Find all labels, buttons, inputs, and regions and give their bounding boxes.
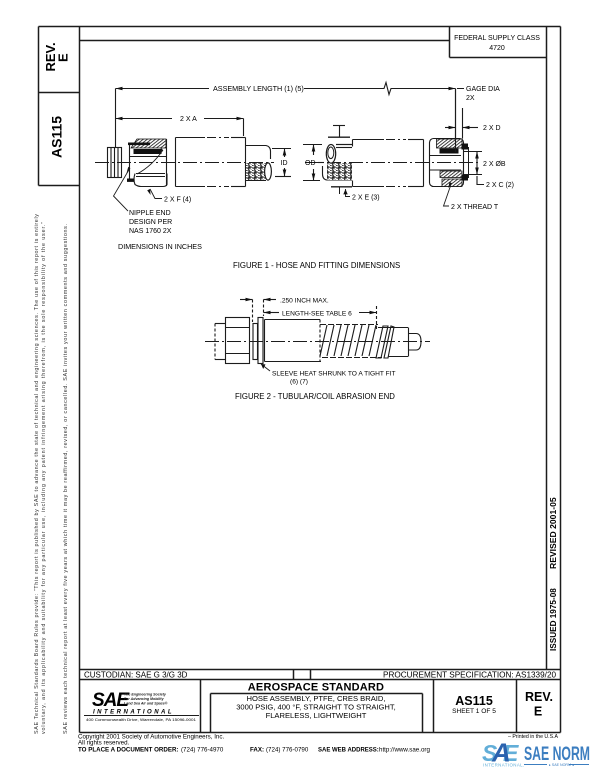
svg-text:LENGTH-SEE TABLE 6: LENGTH-SEE TABLE 6 xyxy=(282,311,352,318)
svg-text:GAGE DIA: GAGE DIA xyxy=(466,86,500,93)
svg-text:NIPPLE END: NIPPLE END xyxy=(129,210,171,217)
svg-text:For Advancing Mobility: For Advancing Mobility xyxy=(124,697,165,701)
svg-text:DIMENSIONS IN INCHES: DIMENSIONS IN INCHES xyxy=(118,242,202,251)
svg-text:REVISED 2001-05: REVISED 2001-05 xyxy=(548,497,558,569)
svg-text:DESIGN PER: DESIGN PER xyxy=(129,219,172,226)
svg-text:SAE Technical Standards Board: SAE Technical Standards Board Rules prov… xyxy=(34,214,40,734)
svg-text:2 X ØB: 2 X ØB xyxy=(483,161,506,168)
svg-text:FIGURE 2 - TUBULAR/COIL ABRASI: FIGURE 2 - TUBULAR/COIL ABRASION END xyxy=(235,392,395,401)
svg-text:AS115: AS115 xyxy=(455,694,493,708)
svg-text:SHEET 1 OF 5: SHEET 1 OF 5 xyxy=(452,708,496,715)
svg-text:2 X E (3): 2 X E (3) xyxy=(352,195,380,202)
svg-text:TO PLACE A DOCUMENT ORDER:(724: TO PLACE A DOCUMENT ORDER:(724) 776-4970… xyxy=(78,747,430,754)
svg-text:REV.: REV. xyxy=(525,690,553,704)
svg-text:ASSEMBLY LENGTH (1) (5): ASSEMBLY LENGTH (1) (5) xyxy=(213,84,304,93)
svg-text:SAE NORM: SAE NORM xyxy=(524,744,590,765)
svg-text:ID: ID xyxy=(281,160,288,167)
svg-text:ISSUED 1975-08: ISSUED 1975-08 xyxy=(549,588,558,651)
svg-text:FIGURE 1 - HOSE AND FITTING DI: FIGURE 1 - HOSE AND FITTING DIMENSIONS xyxy=(233,261,400,270)
svg-text:FEDERAL SUPPLY CLASS: FEDERAL SUPPLY CLASS xyxy=(454,35,540,42)
svg-text:2 X C (2): 2 X C (2) xyxy=(486,182,514,189)
svg-text:2 X A: 2 X A xyxy=(180,116,197,123)
svg-text:AS115: AS115 xyxy=(49,116,65,158)
svg-text:2 X THREAD T: 2 X THREAD T xyxy=(451,204,499,211)
svg-text:PROCUREMENT SPECIFICATION: AS1: PROCUREMENT SPECIFICATION: AS1339/20 xyxy=(383,671,556,680)
svg-text:INTERNATIONAL: INTERNATIONAL xyxy=(93,710,174,716)
svg-text:▸ SAE NORM ◂: ▸ SAE NORM ◂ xyxy=(549,763,574,767)
svg-text:The Engineering Society: The Engineering Society xyxy=(124,693,167,697)
svg-text:.250 INCH MAX.: .250 INCH MAX. xyxy=(280,298,329,305)
svg-text:voluntary, and its applicabili: voluntary, and its applicability and sui… xyxy=(41,222,47,734)
svg-text:AEROSPACE STANDARD: AEROSPACE STANDARD xyxy=(248,682,384,694)
svg-text:(6) (7): (6) (7) xyxy=(290,379,308,386)
svg-text:SAE reviews each technical rep: SAE reviews each technical report at lea… xyxy=(63,224,69,734)
svg-text:E: E xyxy=(56,53,71,62)
svg-text:2 X F (4): 2 X F (4) xyxy=(164,197,191,204)
svg-text:4720: 4720 xyxy=(489,45,505,52)
svg-text:Land Sea Air and Space®: Land Sea Air and Space® xyxy=(124,702,168,706)
svg-text:2 X D: 2 X D xyxy=(483,125,501,132)
svg-text:FLARELESS, LIGHTWEIGHT: FLARELESS, LIGHTWEIGHT xyxy=(266,711,367,720)
svg-text:OD: OD xyxy=(305,160,316,167)
svg-text:All rights reserved.: All rights reserved. xyxy=(78,740,130,747)
svg-text:SLEEVE HEAT SHRUNK TO A TIGHT: SLEEVE HEAT SHRUNK TO A TIGHT FIT xyxy=(272,371,395,378)
svg-text:2X: 2X xyxy=(466,95,475,102)
svg-text:INTERNATIONAL.: INTERNATIONAL. xyxy=(483,763,525,768)
svg-text:NAS 1760 2X: NAS 1760 2X xyxy=(129,228,172,235)
svg-text:400 Commonwealth Drive, Warren: 400 Commonwealth Drive, Warrendale, PA 1… xyxy=(86,717,197,722)
svg-text:E: E xyxy=(534,705,542,719)
svg-text:CUSTODIAN: SAE G 3/G 3D: CUSTODIAN: SAE G 3/G 3D xyxy=(84,671,188,680)
